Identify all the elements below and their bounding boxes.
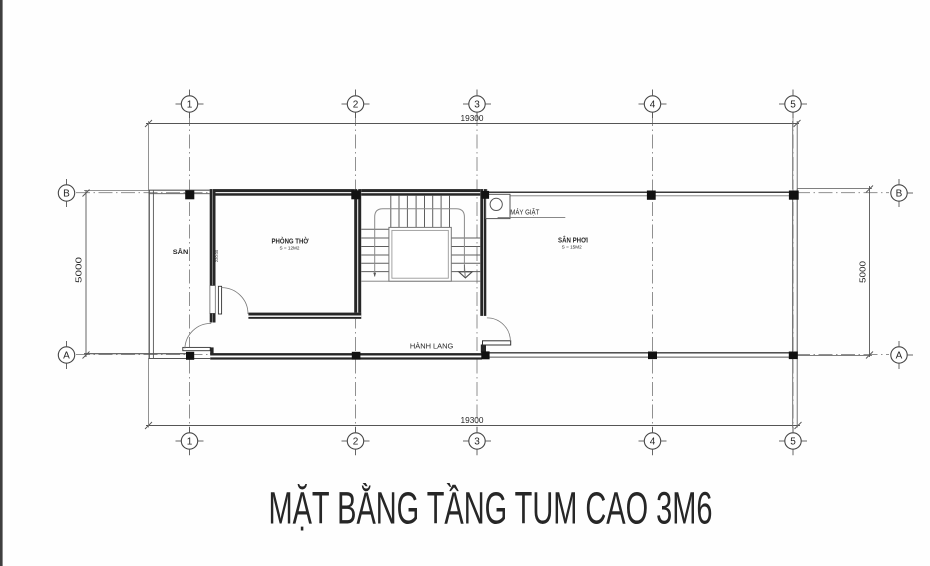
svg-text:S = 15M2: S = 15M2 <box>562 244 583 249</box>
svg-text:MÁY GIẶT: MÁY GIẶT <box>510 207 539 216</box>
svg-text:SÂN: SÂN <box>173 247 189 256</box>
svg-text:3: 3 <box>474 437 480 448</box>
svg-text:220.00: 220.00 <box>214 249 219 262</box>
svg-text:5000: 5000 <box>859 260 868 283</box>
svg-text:1: 1 <box>187 437 193 448</box>
svg-text:2: 2 <box>353 437 359 448</box>
svg-text:A: A <box>896 351 903 362</box>
svg-text:5000: 5000 <box>74 257 84 283</box>
svg-text:19300: 19300 <box>461 415 484 425</box>
svg-text:5: 5 <box>790 100 796 111</box>
svg-text:PHÒNG THỜ: PHÒNG THỜ <box>272 237 310 246</box>
svg-text:4: 4 <box>650 100 656 111</box>
svg-text:1: 1 <box>187 100 193 111</box>
svg-text:3: 3 <box>474 100 480 111</box>
svg-text:HÀNH LANG: HÀNH LANG <box>410 341 454 350</box>
svg-text:A: A <box>63 351 70 362</box>
svg-text:B: B <box>896 189 903 200</box>
svg-text:2: 2 <box>353 100 359 111</box>
svg-text:S = 12M2: S = 12M2 <box>280 246 301 251</box>
svg-text:5: 5 <box>790 437 796 448</box>
svg-text:MẶT BẰNG TẦNG TUM CAO 3M6: MẶT BẰNG TẦNG TUM CAO 3M6 <box>269 482 713 534</box>
svg-text:B: B <box>63 189 70 200</box>
svg-text:4: 4 <box>650 437 656 448</box>
svg-text:19300: 19300 <box>461 113 484 123</box>
